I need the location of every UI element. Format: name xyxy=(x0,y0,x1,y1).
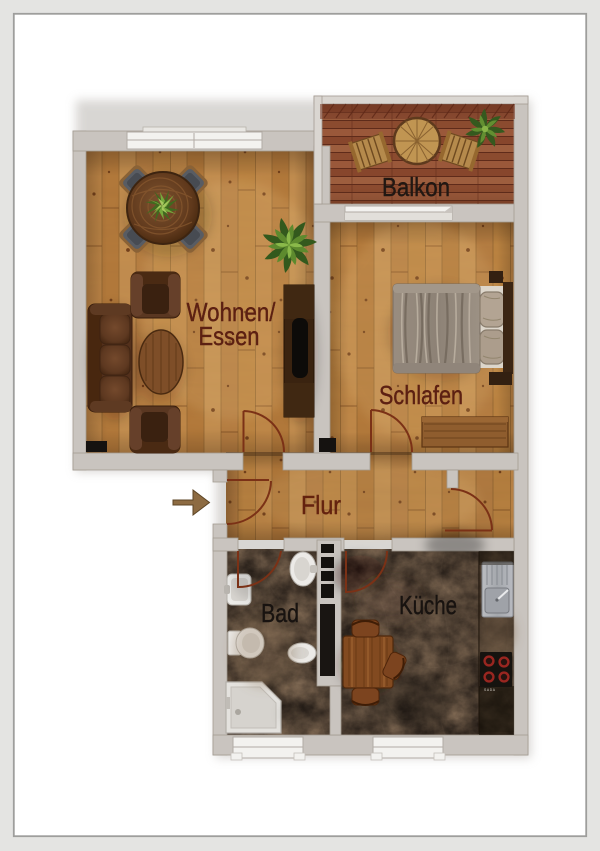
svg-text:Essen: Essen xyxy=(199,321,260,351)
svg-text:Bad: Bad xyxy=(261,598,299,628)
svg-text:Küche: Küche xyxy=(399,590,457,620)
svg-text:Schlafen: Schlafen xyxy=(379,380,463,410)
svg-text:Flur: Flur xyxy=(301,490,341,520)
svg-text:Balkon: Balkon xyxy=(382,172,450,202)
svg-text:SADA: SADA xyxy=(484,688,496,692)
